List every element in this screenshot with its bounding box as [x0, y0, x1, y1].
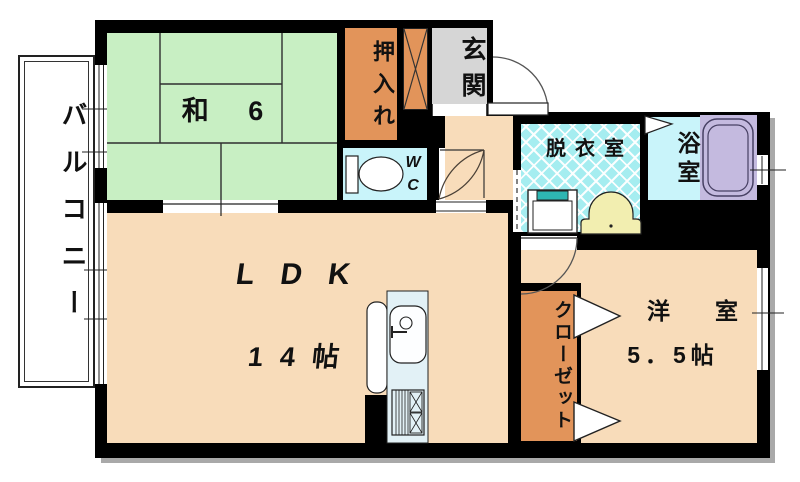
entrance-label: 玄関	[434, 36, 484, 102]
shadow-bottom	[101, 458, 775, 463]
bath-label: 浴室	[650, 128, 698, 192]
window-ldk	[95, 203, 107, 384]
bathtub-zone	[700, 115, 757, 200]
window-tatami	[95, 65, 107, 168]
dressing-door-dash-bg	[513, 170, 521, 232]
room-ldk	[107, 213, 508, 443]
kitchen-wall-stub	[365, 395, 387, 443]
floor-plan: バルコニー 和 6 押入れ 玄関 W C LDK 14帖 脱衣室 浴室 クローゼ…	[0, 0, 800, 482]
ldk-size-label: 14帖	[184, 344, 404, 371]
wc-door-opening	[439, 148, 445, 200]
oshiire-label: 押入れ	[349, 40, 393, 135]
wall-stub	[427, 116, 445, 148]
western-door-opening	[521, 236, 577, 250]
wc-label-c: C	[402, 178, 424, 194]
hallway	[445, 116, 513, 200]
outside-area	[493, 20, 770, 112]
dressing-label: 脱衣室	[521, 139, 649, 159]
balcony-label: バルコニー	[36, 98, 86, 338]
shadow-right	[770, 118, 775, 463]
window-bath	[757, 155, 768, 185]
ldk-label: LDK	[178, 260, 408, 290]
japanese-room-label: 和 6	[160, 98, 293, 125]
hall-ldk-opening	[436, 200, 486, 213]
closet-label: クローゼット	[527, 298, 571, 434]
western-room-label: 洋室	[600, 300, 785, 323]
x-hatch-storage	[403, 28, 428, 110]
tatami-sliding-opening	[163, 200, 278, 213]
western-room-size-label: 5．5帖	[598, 344, 748, 367]
wc-label-w: W	[402, 155, 424, 171]
